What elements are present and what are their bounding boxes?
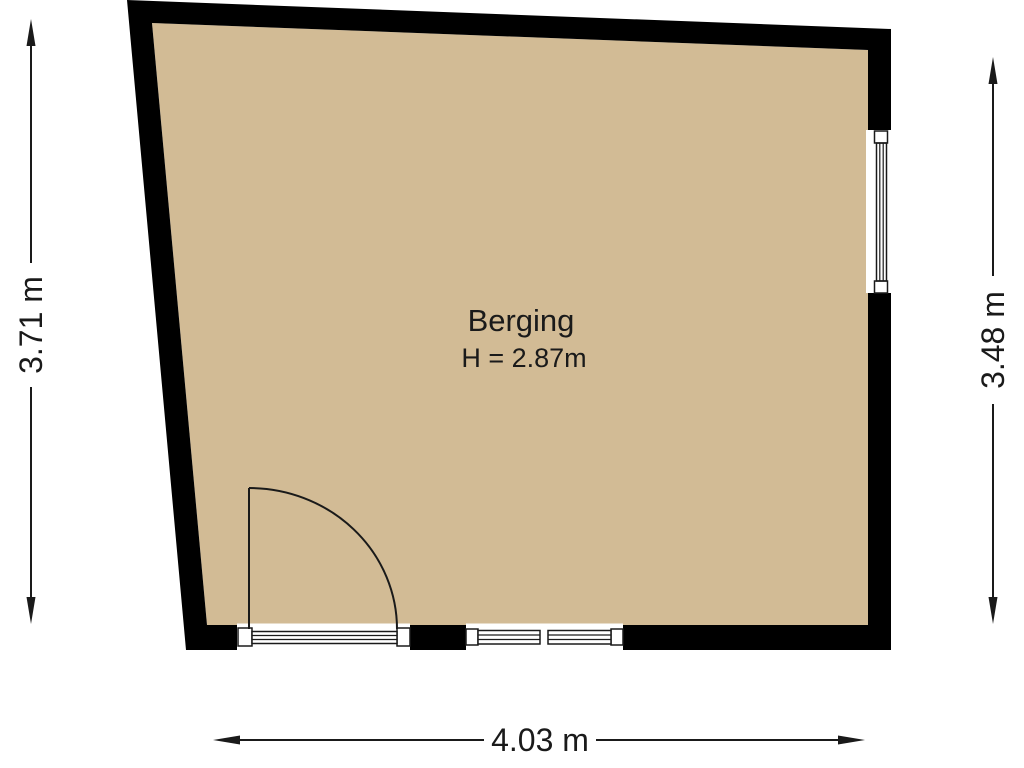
- window-right-cap-bottom: [875, 281, 888, 293]
- door-cap-right: [397, 628, 410, 646]
- window-bottom-cap-left: [466, 629, 478, 645]
- door-threshold: [252, 632, 397, 644]
- room-name-label: Berging: [468, 303, 575, 338]
- window-right-cap-top: [875, 131, 888, 143]
- window-bottom-glazing-left: [478, 631, 540, 645]
- dimension-left-label: 3.71 m: [13, 276, 49, 374]
- dimension-bottom-label: 4.03 m: [491, 722, 589, 758]
- dimension-right-label: 3.48 m: [975, 291, 1011, 389]
- window-bottom-cap-right: [611, 629, 623, 645]
- room-height-label: H = 2.87m: [461, 343, 586, 373]
- floor-plan: Berging H = 2.87m 3.71 m 3.48 m 4.03 m: [0, 0, 1024, 768]
- window-bottom-glazing-right: [548, 631, 611, 645]
- door-cap-left: [238, 628, 252, 646]
